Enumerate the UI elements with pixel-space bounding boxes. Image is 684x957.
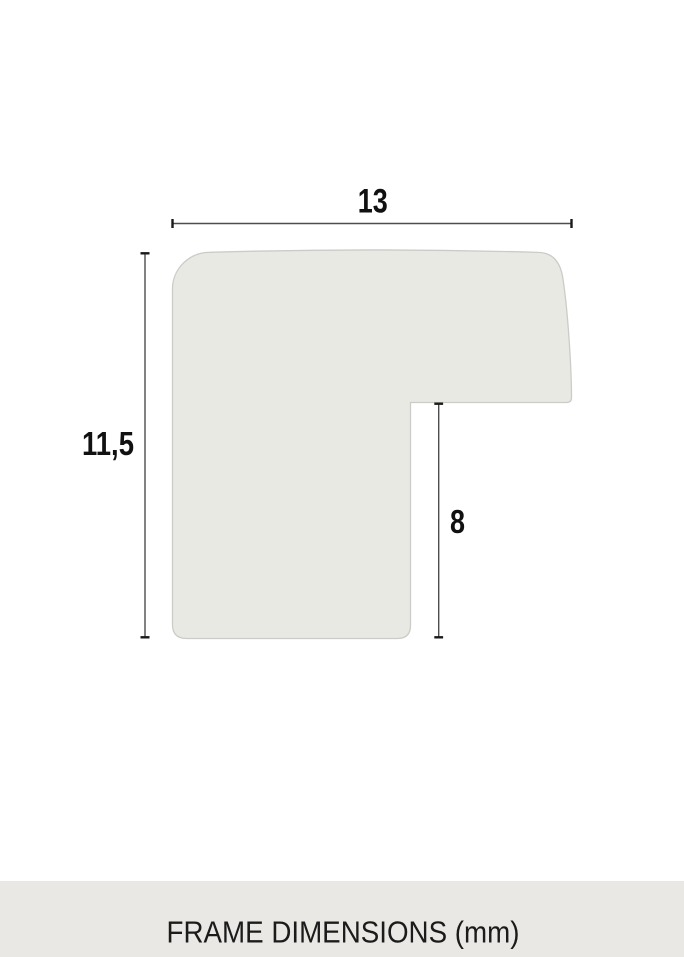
svg-text:FRAME DIMENSIONS (mm): FRAME DIMENSIONS (mm) bbox=[167, 916, 520, 950]
svg-text:13: 13 bbox=[358, 183, 388, 221]
svg-text:11,5: 11,5 bbox=[82, 425, 134, 462]
svg-text:8: 8 bbox=[450, 503, 465, 540]
